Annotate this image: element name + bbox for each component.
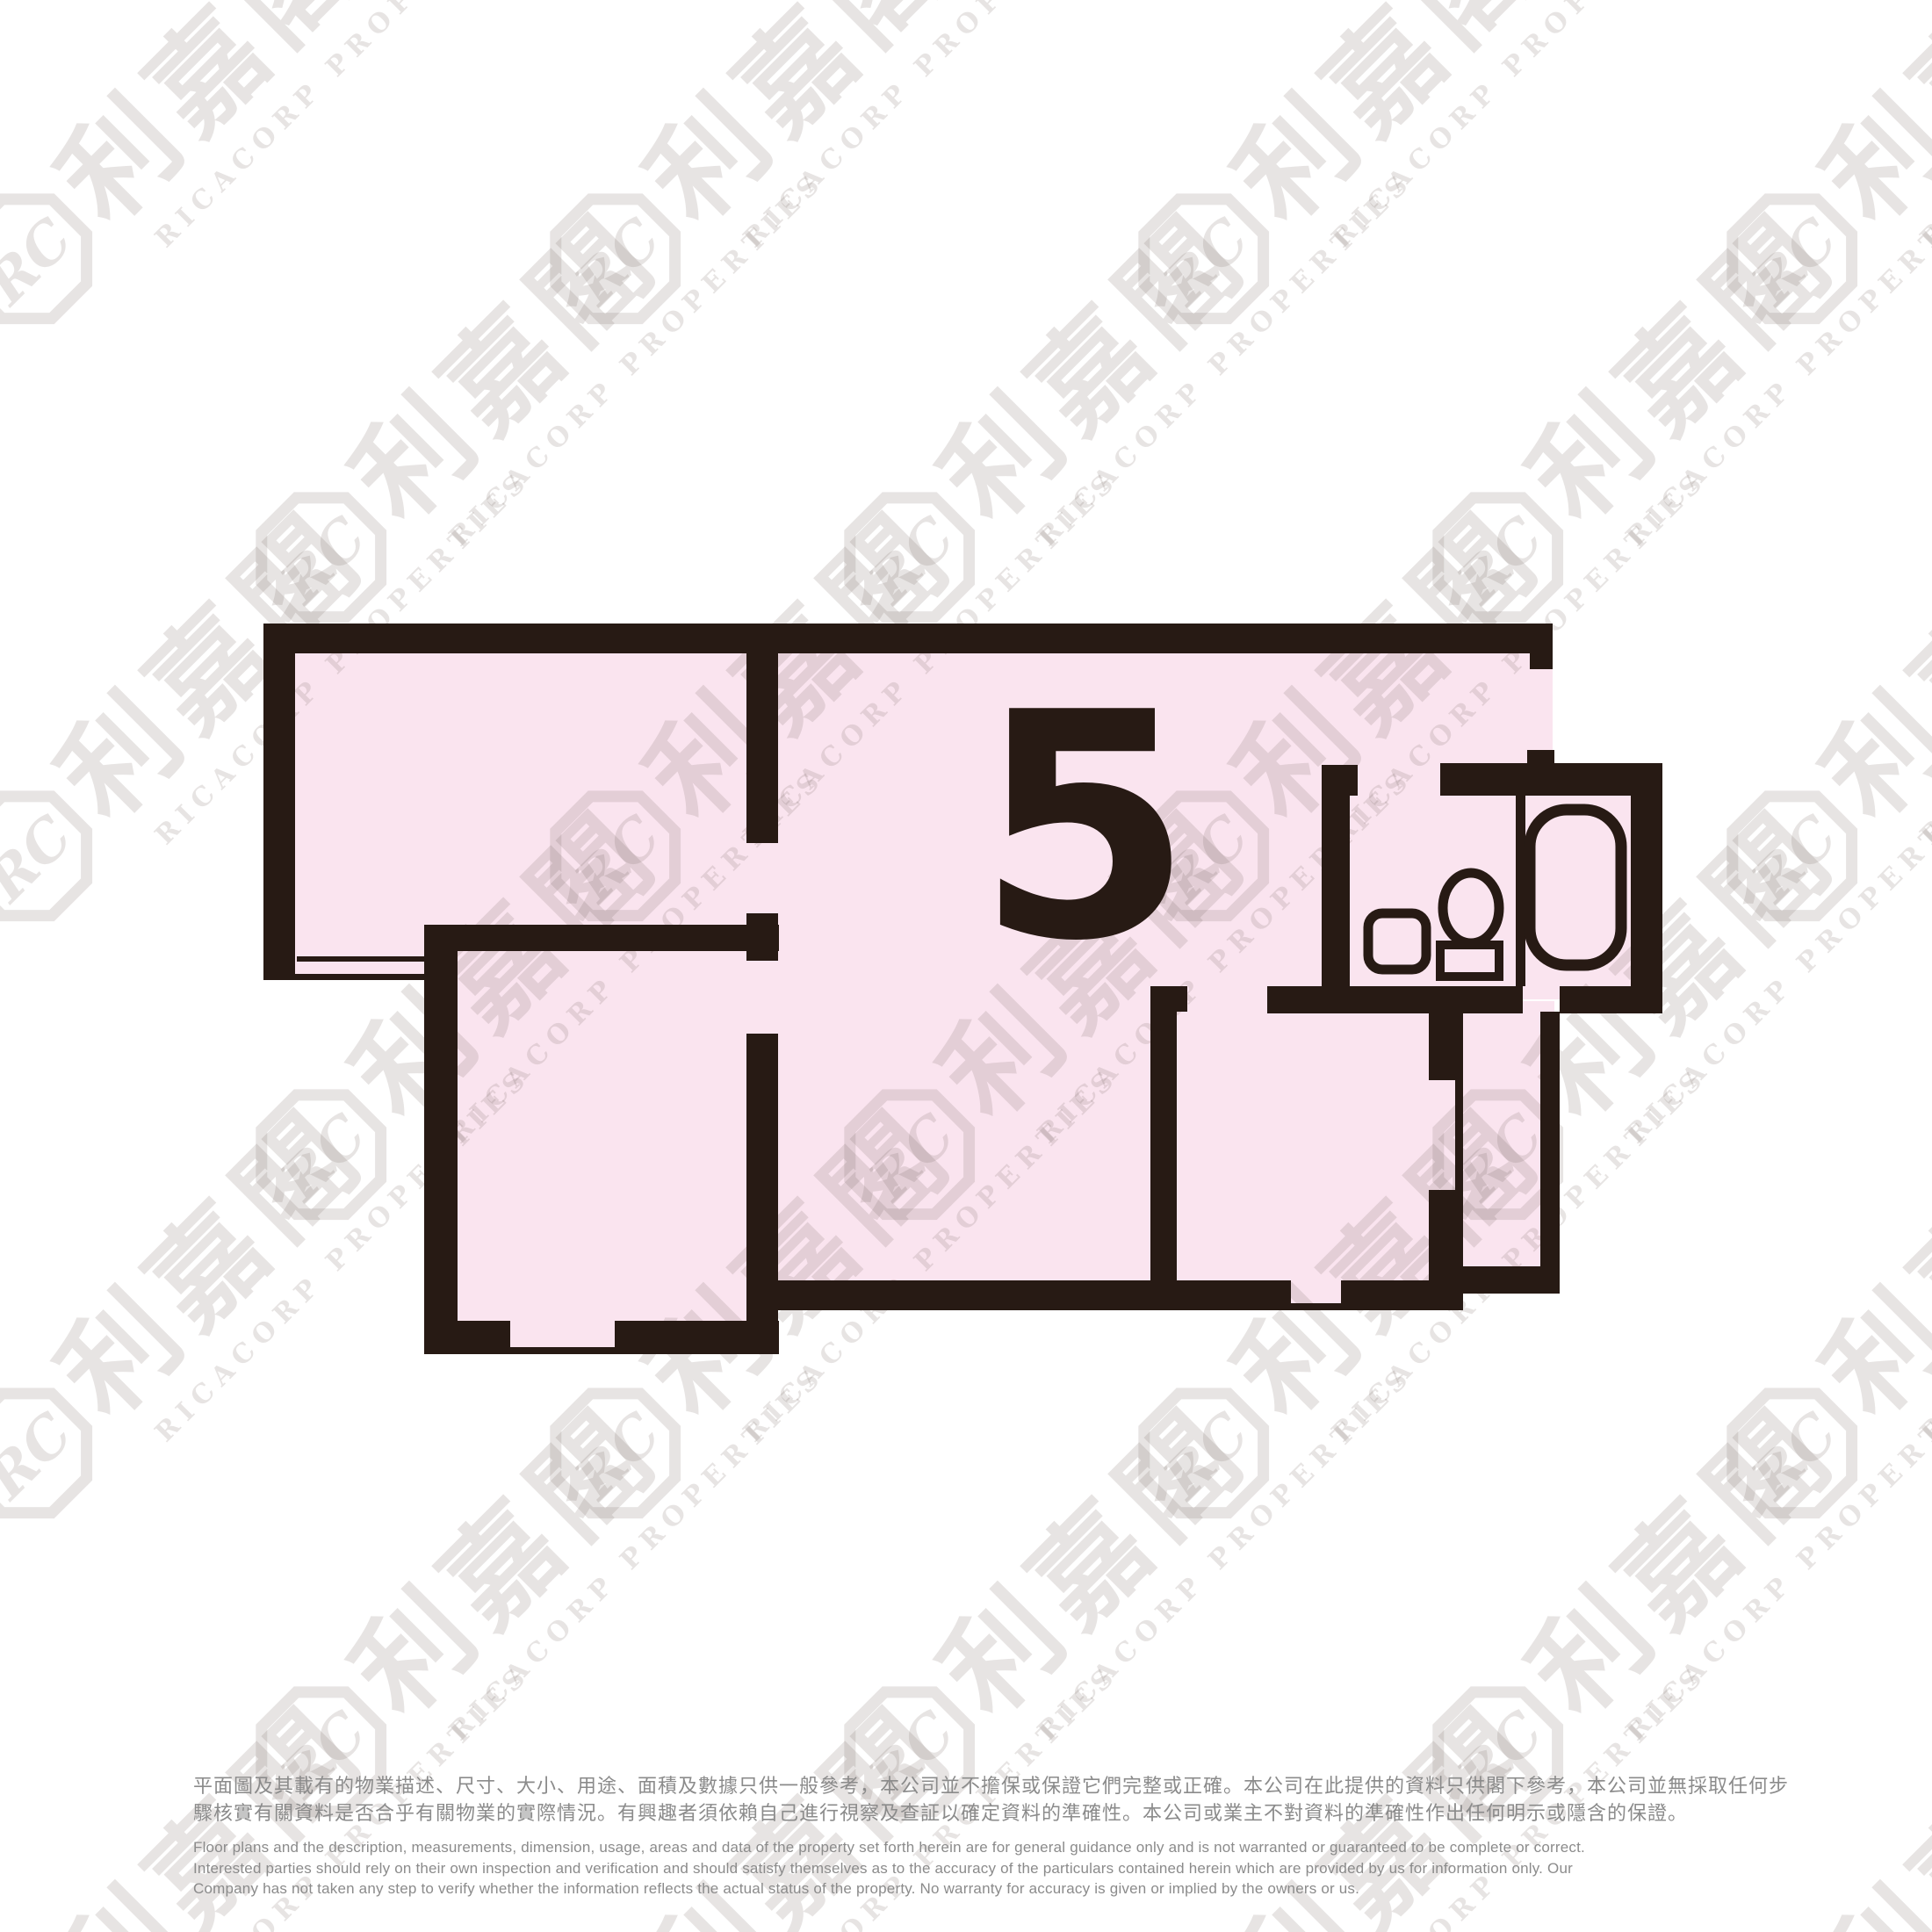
wall-segment [1540, 1012, 1560, 1275]
wall-segment [1341, 1280, 1429, 1310]
bathtub [1530, 810, 1621, 965]
watermark-cjk-text: 利嘉閣 [1799, 487, 1932, 844]
window-line [1291, 1303, 1341, 1310]
wall-segment [1267, 986, 1523, 1013]
watermark-cjk-text: 利嘉閣 [1799, 1084, 1932, 1441]
disclaimer-zh-line: 平面圖及其載有的物業描述、尺寸、大小、用途、面積及數據只供一般參考，本公司並不擔… [193, 1772, 1789, 1799]
unit-number: 5 [976, 645, 1193, 1009]
wall-segment [1150, 1010, 1177, 1280]
wall-segment [777, 1280, 1291, 1310]
wall-segment [424, 925, 779, 951]
floorplan-image: RC利嘉閣RICACORP PROPERTIESRC利嘉閣RICACORP PR… [0, 0, 1932, 1932]
disclaimer-en-line: Interested parties should rely on their … [193, 1858, 1789, 1879]
disclaimer-en-line: Floor plans and the description, measure… [193, 1837, 1789, 1858]
wall-segment [1430, 1266, 1560, 1294]
watermark: RC利嘉閣RICACORP PROPERTIES [0, 0, 537, 371]
disclaimer-chinese: 平面圖及其載有的物業描述、尺寸、大小、用途、面積及數據只供一般參考，本公司並不擔… [193, 1772, 1789, 1827]
wall-segment [1530, 653, 1553, 669]
wall-segment [1527, 750, 1554, 765]
watermark-cjk-text: 利嘉閣 [1799, 1681, 1932, 1932]
toilet-tank [1440, 945, 1499, 977]
toilet-bowl [1443, 873, 1499, 943]
wall-segment [1455, 1080, 1463, 1190]
watermark-cjk-text: 利嘉閣 [1799, 0, 1932, 247]
wall-segment [1516, 796, 1525, 986]
wall-segment [1631, 796, 1662, 1013]
wall-segment [424, 925, 458, 1354]
window-line [510, 1347, 615, 1354]
wash-basin [1368, 913, 1426, 970]
disclaimer-english: Floor plans and the description, measure… [193, 1837, 1789, 1900]
window-line [297, 956, 424, 962]
wall-segment [263, 624, 295, 980]
disclaimer-zh-line: 驟核實有關資料是否合乎有關物業的實際情況。有興趣者須依賴自己進行視察及查証以確定… [193, 1799, 1789, 1827]
floor-plan-svg: RC利嘉閣RICACORP PROPERTIESRC利嘉閣RICACORP PR… [0, 0, 1932, 1932]
wall-segment [746, 913, 778, 961]
wall-segment [746, 653, 778, 843]
wall-segment [263, 624, 1553, 653]
wall-segment [1322, 796, 1350, 986]
wall-segment [1322, 765, 1358, 796]
wall-segment [1440, 763, 1662, 796]
wall-segment [1429, 1012, 1463, 1080]
disclaimer: 平面圖及其載有的物業描述、尺寸、大小、用途、面積及數據只供一般參考，本公司並不擔… [193, 1772, 1789, 1900]
disclaimer-en-line: Company has not taken any step to verify… [193, 1878, 1789, 1900]
wall-segment [424, 1321, 510, 1354]
wall-segment [746, 1034, 778, 1354]
window-line [263, 974, 424, 980]
